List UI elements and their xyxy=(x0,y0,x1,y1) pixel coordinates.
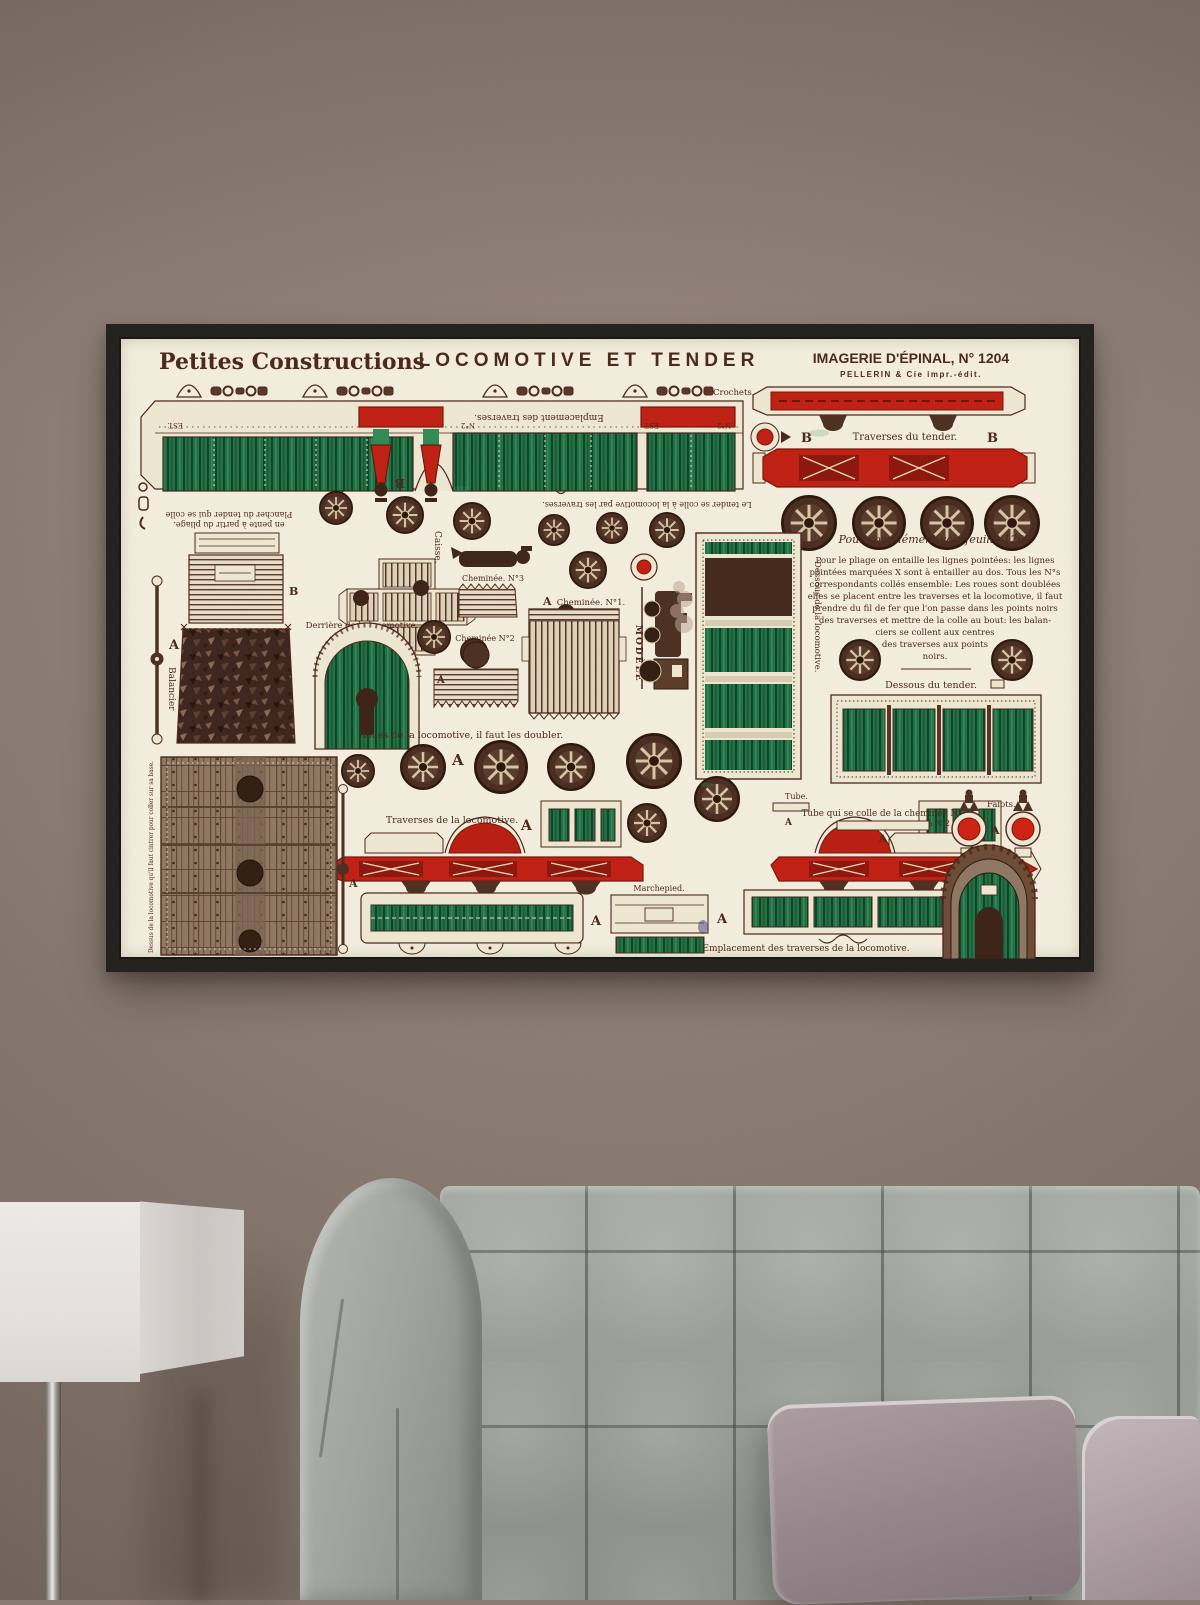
velvet-pillow xyxy=(767,1395,1082,1605)
letter-a: A xyxy=(348,877,358,890)
instr-line: pointées marquées X sont à entailler au … xyxy=(810,567,1061,578)
letter-a: A xyxy=(451,751,464,769)
chain-icon xyxy=(211,387,267,396)
letter-a: A xyxy=(436,675,445,686)
series-title: Petites Constructions xyxy=(159,349,425,375)
boiler-top-piece: Dessus de la locomotive qu'il faut cintr… xyxy=(147,757,337,955)
hook-icon xyxy=(483,385,507,397)
chain-link-icon xyxy=(139,497,148,510)
letter-a: A xyxy=(520,818,533,834)
arm-seam xyxy=(319,1299,344,1458)
letter-a: A xyxy=(784,818,793,828)
lampshade-side-face xyxy=(140,1196,244,1374)
letter-a: A xyxy=(168,638,180,653)
poster-frame: Petites Constructions LOCOMOTIVE ET TEND… xyxy=(106,324,1094,972)
letter-a: A xyxy=(716,912,728,927)
emplacement-loco-label: Emplacement des traverses de la locomoti… xyxy=(702,944,909,954)
hook-icon xyxy=(623,385,647,397)
floor-lamp xyxy=(0,1196,244,1396)
instr-line: prendre du fil de fer que l'on passe dan… xyxy=(812,604,1058,614)
ink-blot xyxy=(698,920,708,934)
chain-icon xyxy=(517,387,573,396)
lampshade-front-face xyxy=(0,1202,140,1382)
cheminee-2-label: Cheminée N°2 xyxy=(455,634,514,643)
wheel xyxy=(628,804,666,842)
side-pillow xyxy=(1082,1416,1200,1600)
lamp-pole-shadow xyxy=(190,1392,212,1600)
traverses-loco-label: Traverses de la locomotive. xyxy=(386,815,518,826)
modele-illustration: MODÈLE xyxy=(633,581,693,689)
wheel xyxy=(992,640,1032,680)
tube-label: Tube. xyxy=(785,792,808,801)
instr-line: des traverses et mettre de la colle au b… xyxy=(819,616,1051,626)
letter-b: B xyxy=(987,431,998,446)
conductor-figure xyxy=(451,546,532,567)
est-mark: EST. xyxy=(643,421,659,429)
tube-colle-label-2: à N 2 xyxy=(928,819,950,828)
cheminee-1-piece: A Cheminée. N°1. xyxy=(522,595,626,719)
tender-colle-label: Le tender se colle à la locomotive par l… xyxy=(542,500,751,509)
letter-b: B xyxy=(395,476,405,490)
tube-colle-label: Tube qui se colle de la cheminée N 3 xyxy=(802,808,967,819)
lamp-pole xyxy=(46,1382,61,1600)
dessous-tender-piece: Dessous du tender. xyxy=(831,680,1041,783)
est-mark: EST. xyxy=(167,421,183,429)
poster-print: Petites Constructions LOCOMOTIVE ET TEND… xyxy=(119,337,1081,959)
main-title: LOCOMOTIVE ET TENDER xyxy=(419,350,760,371)
letter-a: A xyxy=(878,834,887,845)
hook-icon xyxy=(177,385,201,397)
letter-a: A xyxy=(542,595,552,608)
dessous-tender-label: Dessous du tender. xyxy=(885,680,977,691)
balancier-label: Balancier xyxy=(166,667,176,711)
side-strip-piece: A xyxy=(361,893,602,954)
dessous-locomotive-piece: Dessous de la locomotive. xyxy=(696,533,822,779)
letter-b: B xyxy=(289,585,298,598)
instr-line: ciers se collent aux centres xyxy=(875,628,994,638)
instr-line: elles se placent entre les traverses et … xyxy=(808,592,1063,602)
poster-header: Petites Constructions LOCOMOTIVE ET TEND… xyxy=(159,349,1009,379)
scroll-ornament xyxy=(819,935,867,943)
sofa-arm xyxy=(300,1178,482,1600)
shutter-piece: B xyxy=(189,533,298,623)
publisher: IMAGERIE D'ÉPINAL, N° 1204 xyxy=(813,350,1010,366)
chain-icon xyxy=(337,387,393,396)
front-arch-piece xyxy=(943,845,1035,959)
tender-traverses-piece: B Traverses du tender. B xyxy=(751,387,1035,487)
window-strip-piece: Emplacement des traverses de la locomoti… xyxy=(702,890,951,954)
instr-line: noirs. xyxy=(923,652,948,662)
dessus-loco-label: Dessus de la locomotive qu'il faut cintr… xyxy=(147,761,155,953)
n2-mark: N°2 xyxy=(461,421,475,429)
dessous-loco-label: Dessous de la locomotive. xyxy=(812,561,822,672)
marchepied-piece: Marchepied. A xyxy=(611,884,728,953)
instr-line: des traverses aux points xyxy=(882,640,988,650)
complement-note: Pour complément voir feuille 1205 xyxy=(838,533,1032,546)
coal-plate-piece xyxy=(177,624,295,743)
letter-a: A xyxy=(590,914,602,929)
hooks-row: Crochets. xyxy=(177,385,754,398)
cheminee-3-label: Cheminée. N°3 xyxy=(462,574,524,583)
wheel xyxy=(840,640,880,680)
instr-line: correspondants collés ensemble: Les roue… xyxy=(810,579,1061,590)
instr-line: Pour le pliage on entaille les lignes po… xyxy=(815,555,1054,566)
falots-label: Falots. xyxy=(987,800,1016,810)
hook-icon xyxy=(303,385,327,397)
cheminee-1-label: Cheminée. N°1. xyxy=(557,597,626,608)
plancher-label-1: Plancher du tender qui se colle xyxy=(165,510,292,519)
traverses-tender-label: Traverses du tender. xyxy=(853,432,958,443)
chain-icon xyxy=(657,387,713,396)
emplacement-traverses-label: Emplacement des traverses. xyxy=(474,412,604,422)
arm-seam xyxy=(396,1408,399,1600)
publisher-sub: PELLERIN & Cie impr.-édit. xyxy=(840,370,982,379)
cheminee-3-piece: Cheminée. N°3 A xyxy=(459,574,524,617)
tender-sides-piece: Emplacement des traverses. EST. N°2 EST.… xyxy=(141,401,752,509)
marchepied-label: Marchepied. xyxy=(633,884,684,893)
roues-label: Roues de la locomotive, il faut les doub… xyxy=(359,730,563,741)
hook-icon xyxy=(140,517,145,529)
plancher-label-2: en pente à partir du pliage. xyxy=(173,520,284,529)
n2-mark: N°2 xyxy=(717,421,731,429)
letter-a: A xyxy=(990,824,1000,837)
crochets-label: Crochets. xyxy=(713,388,754,398)
